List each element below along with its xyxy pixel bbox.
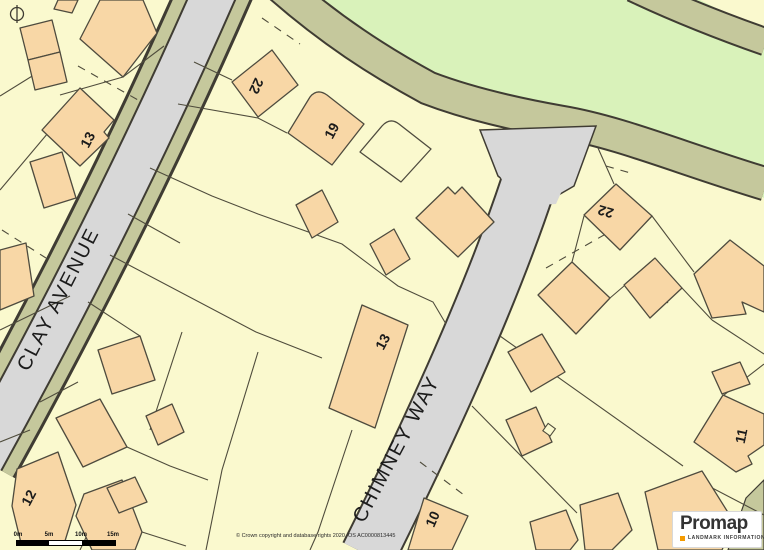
map-viewport[interactable]: CLAY AVENUE CHIMNEY WAY 13 22 19 13 22 1… [0,0,764,550]
promap-tagline: LANDMARK INFORMATION [688,535,764,541]
logo-bullet-icon [680,536,685,541]
scale-label: 15m [107,532,119,538]
copyright-attribution: © Crown copyright and database rights 20… [236,533,395,539]
building [98,336,155,394]
building [146,404,184,445]
building [530,510,578,550]
building-outline-cream [360,121,431,182]
building [694,240,764,318]
map-symbol-icon [11,5,24,23]
scale-bar-rule [16,540,116,546]
building [370,229,410,275]
building [56,399,127,467]
promap-brand-text: Promap [680,514,761,534]
building [580,493,632,550]
building [712,362,750,394]
scale-label: 5m [45,532,54,538]
building-13-center [329,305,408,428]
scale-label: 0m [14,532,23,538]
building-11 [694,395,764,472]
map-canvas[interactable]: CLAY AVENUE CHIMNEY WAY 13 22 19 13 22 1… [0,0,764,550]
scale-bar: 0m 5m 10m 15m [14,532,118,546]
building [624,258,682,318]
promap-logo: Promap LANDMARK INFORMATION [672,511,762,548]
scale-label: 10m [75,532,87,538]
building [296,190,338,238]
building [508,334,565,392]
building [30,152,76,208]
building [54,0,78,13]
building [538,262,610,334]
building-22-east [584,184,652,250]
